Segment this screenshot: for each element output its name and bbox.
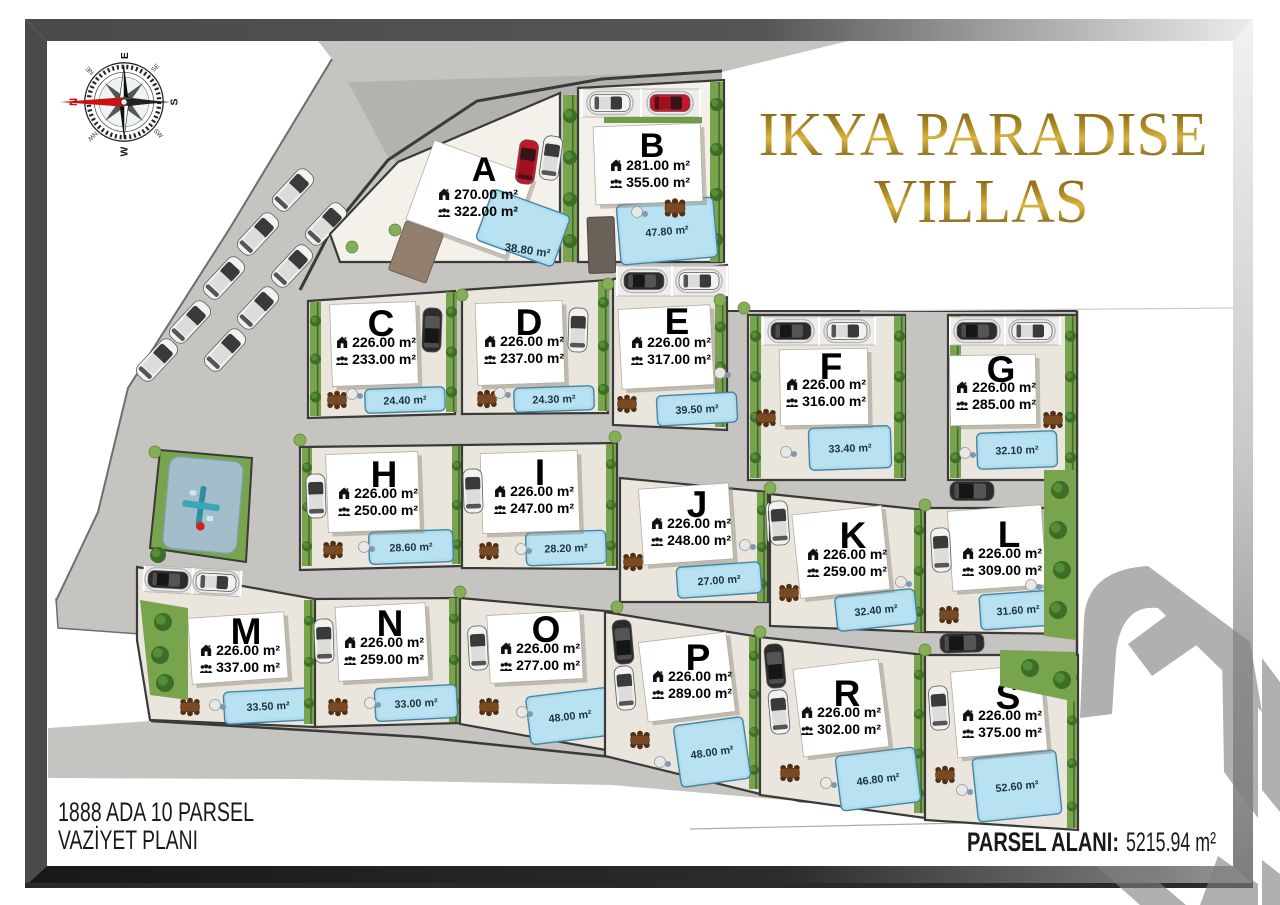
svg-text:355.00 m²: 355.00 m² xyxy=(626,175,691,190)
svg-text:39.50 m²: 39.50 m² xyxy=(675,403,719,417)
svg-text:33.50 m²: 33.50 m² xyxy=(246,700,290,714)
svg-text:24.40 m²: 24.40 m² xyxy=(383,394,427,408)
svg-text:W: W xyxy=(120,147,131,157)
svg-text:259.00 m²: 259.00 m² xyxy=(360,652,425,667)
svg-text:285.00 m²: 285.00 m² xyxy=(972,397,1037,412)
svg-text:N: N xyxy=(68,98,80,106)
svg-text:226.00 m²: 226.00 m² xyxy=(354,486,419,501)
svg-text:226.00 m²: 226.00 m² xyxy=(978,546,1043,561)
svg-text:259.00 m²: 259.00 m² xyxy=(823,564,888,579)
svg-text:322.00 m²: 322.00 m² xyxy=(454,204,519,219)
svg-text:277.00 m²: 277.00 m² xyxy=(516,658,581,673)
svg-text:226.00 m²: 226.00 m² xyxy=(667,516,732,531)
svg-text:237.00 m²: 237.00 m² xyxy=(500,351,565,366)
svg-text:S: S xyxy=(169,98,180,105)
svg-text:1888 ADA 10 PARSEL: 1888 ADA 10 PARSEL xyxy=(58,797,254,827)
svg-text:250.00 m²: 250.00 m² xyxy=(354,503,419,518)
svg-text:VILLAS: VILLAS xyxy=(874,168,1089,236)
svg-text:226.00 m²: 226.00 m² xyxy=(500,334,565,349)
svg-text:5215.94 m²: 5215.94 m² xyxy=(1126,827,1216,857)
svg-text:226.00 m²: 226.00 m² xyxy=(978,708,1043,723)
svg-text:33.40 m²: 33.40 m² xyxy=(828,442,872,456)
svg-text:33.00 m²: 33.00 m² xyxy=(394,697,438,711)
svg-text:VAZİYET PLANI: VAZİYET PLANI xyxy=(58,824,198,855)
svg-text:375.00 m²: 375.00 m² xyxy=(978,725,1043,740)
svg-text:281.00 m²: 281.00 m² xyxy=(626,158,691,173)
svg-text:302.00 m²: 302.00 m² xyxy=(817,722,882,737)
svg-text:226.00 m²: 226.00 m² xyxy=(510,484,575,499)
svg-text:248.00 m²: 248.00 m² xyxy=(667,533,732,548)
svg-text:28.60 m²: 28.60 m² xyxy=(389,541,433,555)
svg-text:226.00 m²: 226.00 m² xyxy=(802,377,867,392)
svg-text:316.00 m²: 316.00 m² xyxy=(802,394,867,409)
svg-text:247.00 m²: 247.00 m² xyxy=(510,501,575,516)
svg-text:270.00 m²: 270.00 m² xyxy=(454,187,519,202)
svg-text:226.00 m²: 226.00 m² xyxy=(817,705,882,720)
svg-text:226.00 m²: 226.00 m² xyxy=(972,380,1037,395)
svg-text:226.00 m²: 226.00 m² xyxy=(352,335,417,350)
svg-text:28.20 m²: 28.20 m² xyxy=(544,542,588,556)
svg-text:337.00 m²: 337.00 m² xyxy=(216,660,281,675)
svg-text:289.00 m²: 289.00 m² xyxy=(668,686,733,701)
svg-text:226.00 m²: 226.00 m² xyxy=(516,641,581,656)
svg-text:233.00 m²: 233.00 m² xyxy=(352,352,417,367)
svg-text:E: E xyxy=(120,52,131,59)
svg-text:309.00 m²: 309.00 m² xyxy=(978,563,1043,578)
svg-text:226.00 m²: 226.00 m² xyxy=(360,635,425,650)
svg-text:PARSEL ALANI:: PARSEL ALANI: xyxy=(967,827,1119,857)
svg-text:226.00 m²: 226.00 m² xyxy=(668,669,733,684)
svg-text:226.00 m²: 226.00 m² xyxy=(823,547,888,562)
svg-text:226.00 m²: 226.00 m² xyxy=(647,335,712,350)
svg-text:317.00 m²: 317.00 m² xyxy=(647,352,712,367)
svg-text:24.30 m²: 24.30 m² xyxy=(532,393,576,407)
svg-text:32.10 m²: 32.10 m² xyxy=(995,444,1039,458)
svg-text:IKYA PARADISE: IKYA PARADISE xyxy=(759,101,1208,169)
svg-text:A: A xyxy=(472,151,497,189)
svg-text:226.00 m²: 226.00 m² xyxy=(216,643,281,658)
